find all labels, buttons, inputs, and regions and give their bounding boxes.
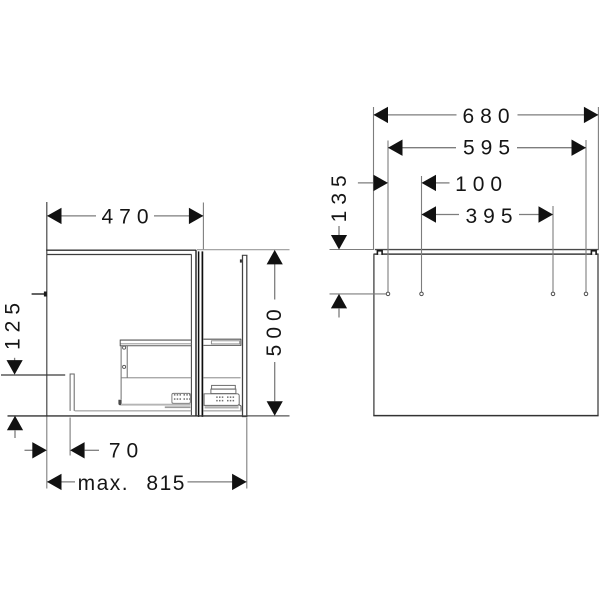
svg-text:595: 595 [463, 136, 516, 159]
svg-text:125: 125 [2, 297, 25, 350]
svg-text:135: 135 [328, 169, 351, 222]
svg-text:100: 100 [455, 173, 508, 196]
svg-text:70: 70 [109, 439, 144, 462]
svg-text:max. 815: max. 815 [78, 472, 186, 495]
svg-text:395: 395 [465, 205, 518, 228]
svg-text:680: 680 [462, 105, 515, 128]
svg-text:500: 500 [263, 303, 286, 356]
svg-text:470: 470 [101, 206, 154, 229]
